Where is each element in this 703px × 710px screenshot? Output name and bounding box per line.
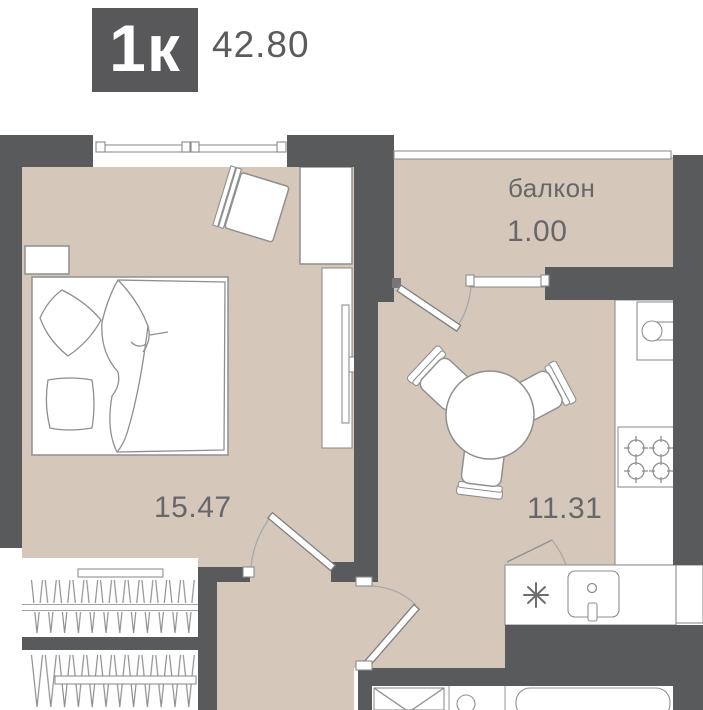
balcony-wall [545,267,673,300]
nightstand [25,246,69,274]
total-area-label: 42.80 [212,24,310,66]
balcony-name-label: балкон [508,173,595,203]
counter-corner [676,565,703,623]
window-handle [191,142,199,152]
window-handle [96,142,105,152]
wall [198,567,217,710]
bedroom-area-label: 15.47 [154,491,232,524]
apartment-type-badge: 1к [92,8,198,92]
round-sink [642,321,662,341]
bathtub [516,688,670,710]
window-handle [182,142,190,152]
wall [354,135,394,302]
closet-shelf [55,676,196,684]
round-table [446,371,534,459]
balcony-railing [394,151,671,159]
window-handle [466,275,474,286]
toilet [457,695,475,710]
floor-plan-page: 15.47 11.31 балкон 1.00 1к 42.80 [0,0,703,710]
balcony-area-label: 1.00 [507,215,567,248]
fridge-snowflake-icon [524,583,548,607]
wall [673,155,703,565]
bed [32,277,228,455]
kitchen-area-label: 11.31 [527,492,602,525]
apartment-type-label: 1к [109,10,181,86]
tv [342,305,349,423]
washing-machine [374,688,444,710]
floor-plan: 15.47 11.31 балкон 1.00 [0,0,703,710]
wall [505,625,703,686]
stove [618,427,676,487]
kitchen-balcony-window [470,277,545,287]
window-handle [541,275,549,286]
wall [0,135,22,548]
wall [673,686,703,710]
closet-shelf [78,569,163,577]
wall [22,637,198,650]
tap [588,603,597,621]
wall [354,302,378,582]
window-handle [277,142,286,152]
wardrobe [300,167,352,264]
wall [358,668,505,686]
